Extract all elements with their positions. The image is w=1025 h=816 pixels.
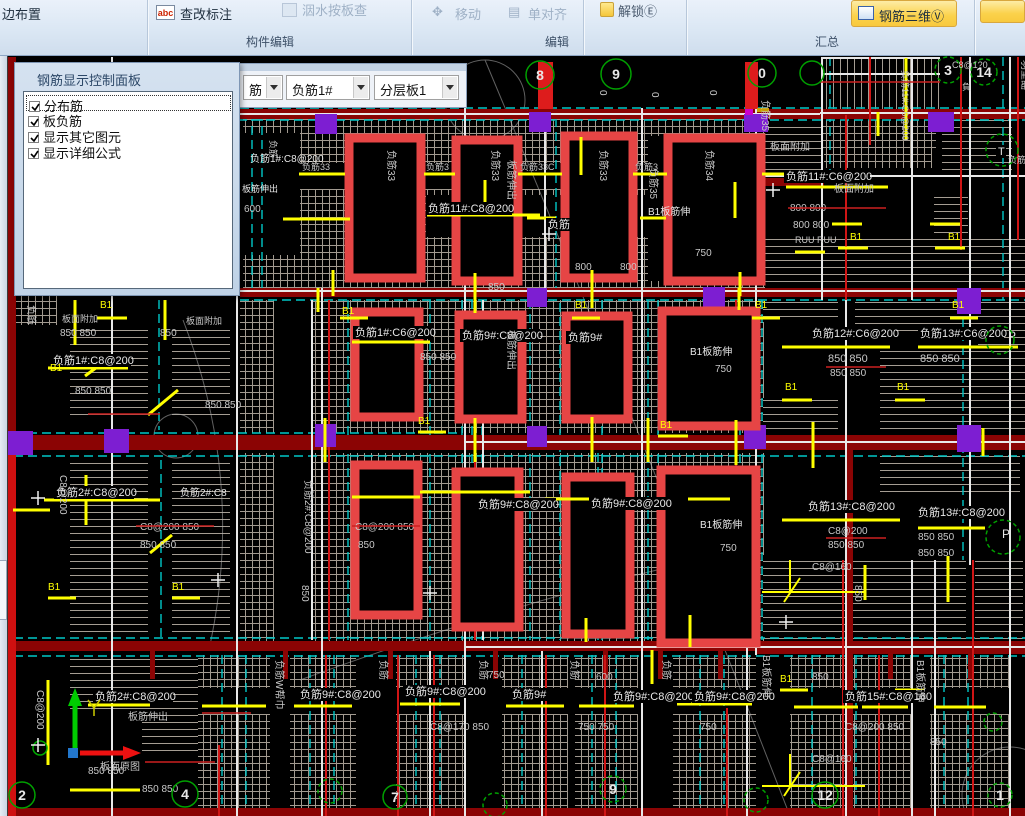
svg-text:800 800: 800 800	[793, 220, 830, 231]
svg-text:负筋35: 负筋35	[647, 168, 660, 200]
svg-text:850: 850	[488, 282, 505, 293]
svg-text:B1: B1	[755, 300, 768, 311]
svg-text:P: P	[1002, 527, 1010, 541]
svg-text:9: 9	[612, 66, 620, 82]
svg-text:C8@170 850: C8@170 850	[430, 722, 490, 733]
svg-text:負: 負	[962, 81, 971, 92]
svg-text:B1板筋伸: B1板筋伸	[690, 345, 732, 358]
svg-text:负筋33: 负筋33	[489, 150, 502, 182]
svg-text:负筋33: 负筋33	[597, 150, 610, 182]
svg-text:负筋9#:C8@200: 负筋9#:C8@200	[462, 328, 543, 342]
svg-text:负筋: 负筋	[548, 217, 570, 231]
svg-text:C8@200 850: C8@200 850	[355, 522, 415, 533]
svg-text:850: 850	[812, 672, 829, 683]
svg-text:负筋9#:C8@200: 负筋9#:C8@200	[405, 684, 486, 698]
svg-text:850 850: 850 850	[918, 548, 955, 559]
svg-text:850: 850	[852, 585, 863, 602]
svg-text:B1: B1	[897, 382, 910, 393]
svg-text:B1: B1	[785, 382, 798, 393]
svg-text:负筋35: 负筋35	[759, 100, 772, 132]
svg-text:负筋33C: 负筋33C	[520, 161, 555, 172]
svg-text:B1: B1	[575, 300, 588, 311]
svg-text:C8@200 850: C8@200 850	[140, 522, 200, 533]
svg-text:850 850: 850 850	[830, 368, 867, 379]
svg-text:B1: B1	[418, 416, 431, 427]
svg-text:负筋11#:C6@200: 负筋11#:C6@200	[900, 70, 911, 141]
svg-text:P: P	[1008, 329, 1016, 343]
svg-text:850 850: 850 850	[205, 400, 242, 411]
svg-text:850 850: 850 850	[918, 532, 955, 543]
svg-text:负筋33: 负筋33	[385, 150, 398, 182]
svg-text:负筋3: 负筋3	[426, 161, 449, 172]
svg-text:750: 750	[700, 722, 717, 733]
svg-text:板面附加: 板面附加	[770, 140, 810, 153]
svg-text:B1: B1	[952, 300, 965, 311]
svg-text:850: 850	[930, 737, 947, 748]
svg-text:7: 7	[391, 789, 399, 805]
svg-text:负筋11#:C8@200: 负筋11#:C8@200	[428, 201, 514, 215]
svg-text:B1: B1	[48, 582, 61, 593]
svg-text:800: 800	[620, 262, 637, 273]
svg-text:负筋9#:C8@200: 负筋9#:C8@200	[591, 496, 672, 510]
svg-text:B1: B1	[948, 232, 961, 243]
svg-text:C8@200: C8@200	[57, 475, 68, 515]
svg-text:负筋9#:C8@200: 负筋9#:C8@200	[300, 687, 381, 701]
svg-text:750: 750	[488, 670, 505, 681]
svg-text:850 850: 850 850	[75, 386, 112, 397]
svg-text:600: 600	[596, 672, 613, 683]
svg-text:12: 12	[817, 787, 833, 803]
svg-text:0: 0	[758, 65, 766, 81]
svg-text:B1: B1	[850, 232, 863, 243]
svg-text:C8@200: C8@200	[34, 690, 45, 730]
svg-text:板筋伸出: 板筋伸出	[128, 710, 168, 723]
svg-text:负筋: 负筋	[377, 660, 390, 680]
svg-text:4: 4	[181, 786, 189, 802]
svg-text:羽堂謡: 羽堂謡	[1019, 60, 1025, 90]
svg-text:1: 1	[996, 787, 1004, 803]
svg-text:B1: B1	[50, 363, 63, 374]
svg-text:板面附加: 板面附加	[834, 182, 874, 195]
svg-text:负筋9#: 负筋9#	[568, 330, 603, 344]
svg-text:0: 0	[597, 90, 608, 96]
svg-text:B1: B1	[100, 300, 113, 311]
svg-text:负筋: 负筋	[25, 305, 38, 325]
svg-text:RUU RUU: RUU RUU	[795, 235, 837, 245]
svg-text:负筋: 负筋	[660, 660, 673, 680]
svg-text:850 850: 850 850	[828, 540, 865, 551]
svg-text:850 850: 850 850	[60, 328, 97, 339]
svg-text:负筋: 负筋	[568, 660, 581, 680]
svg-text:负筋13#:C8@200: 负筋13#:C8@200	[918, 505, 1005, 519]
svg-text:负筋W帮巾: 负筋W帮巾	[273, 660, 286, 709]
svg-text:C8@160: C8@160	[812, 562, 852, 573]
svg-text:负筋: 负筋	[268, 140, 279, 158]
svg-text:850 850: 850 850	[828, 353, 868, 365]
svg-text:B1: B1	[780, 674, 793, 685]
svg-text:板面附加: 板面附加	[62, 313, 98, 324]
svg-text:板面附加: 板面附加	[186, 315, 222, 326]
svg-text:B1板筋伸: B1板筋伸	[760, 655, 773, 697]
svg-text:负筋2#:C8@200: 负筋2#:C8@200	[302, 480, 315, 554]
svg-text:负筋13#:C8@200: 负筋13#:C8@200	[808, 499, 895, 513]
svg-text:750: 750	[695, 248, 712, 259]
svg-text:B1: B1	[172, 582, 185, 593]
svg-text:B1板筋伸: B1板筋伸	[914, 660, 927, 702]
svg-text:板面原图: 板面原图	[100, 760, 140, 773]
svg-text:0: 0	[707, 90, 718, 96]
svg-text:负筋1#:C8@200: 负筋1#:C8@200	[53, 353, 134, 367]
svg-text:板筋伸出: 板筋伸出	[505, 330, 518, 370]
svg-text:B1板筋伸: B1板筋伸	[648, 205, 690, 218]
svg-text:C8@1?0: C8@1?0	[952, 60, 988, 70]
svg-text:负筋9#:C8@200: 负筋9#:C8@200	[613, 689, 694, 703]
svg-text:B1: B1	[660, 420, 673, 431]
svg-text:板筋伸出: 板筋伸出	[505, 160, 518, 200]
svg-text:负筋1#:C6@200: 负筋1#:C6@200	[355, 325, 436, 339]
svg-text:750: 750	[720, 543, 737, 554]
svg-text:负筋34: 负筋34	[703, 150, 716, 182]
svg-text:T: T	[998, 146, 1005, 158]
svg-text:850 850: 850 850	[920, 353, 960, 365]
svg-text:负筋2#:C8@200: 负筋2#:C8@200	[95, 689, 176, 703]
svg-text:B1: B1	[342, 306, 355, 317]
svg-text:2: 2	[18, 787, 26, 803]
svg-text:8: 8	[536, 67, 544, 83]
svg-text:850: 850	[160, 328, 177, 339]
svg-text:750 750: 750 750	[578, 722, 615, 733]
svg-text:负筋: 负筋	[477, 660, 490, 680]
svg-text:9: 9	[609, 781, 617, 797]
svg-text:750: 750	[715, 364, 732, 375]
svg-text:负筋33: 负筋33	[302, 161, 330, 172]
svg-text:C8@160: C8@160	[812, 754, 852, 765]
svg-text:0: 0	[649, 92, 660, 98]
svg-text:850: 850	[299, 585, 310, 602]
svg-text:850: 850	[358, 540, 375, 551]
svg-text:B1板筋伸: B1板筋伸	[700, 518, 742, 531]
svg-text:负筋12#:C6@200: 负筋12#:C6@200	[812, 326, 899, 340]
svg-text:3: 3	[944, 62, 952, 78]
svg-text:850 850: 850 850	[140, 540, 177, 551]
svg-text:800: 800	[575, 262, 592, 273]
svg-text:负筋9#: 负筋9#	[512, 687, 547, 701]
svg-text:850 850: 850 850	[420, 352, 457, 363]
svg-text:600: 600	[244, 204, 261, 215]
svg-text:C8@200 850: C8@200 850	[845, 722, 905, 733]
svg-text:板筋伸出: 板筋伸出	[242, 183, 278, 194]
svg-text:负筋11#:C6@200: 负筋11#:C6@200	[786, 169, 872, 183]
svg-text:负筋2#:C8: 负筋2#:C8	[180, 486, 227, 499]
svg-text:负筋9#:C8@200: 负筋9#:C8@200	[478, 497, 559, 511]
svg-text:C8@200: C8@200	[828, 526, 868, 537]
